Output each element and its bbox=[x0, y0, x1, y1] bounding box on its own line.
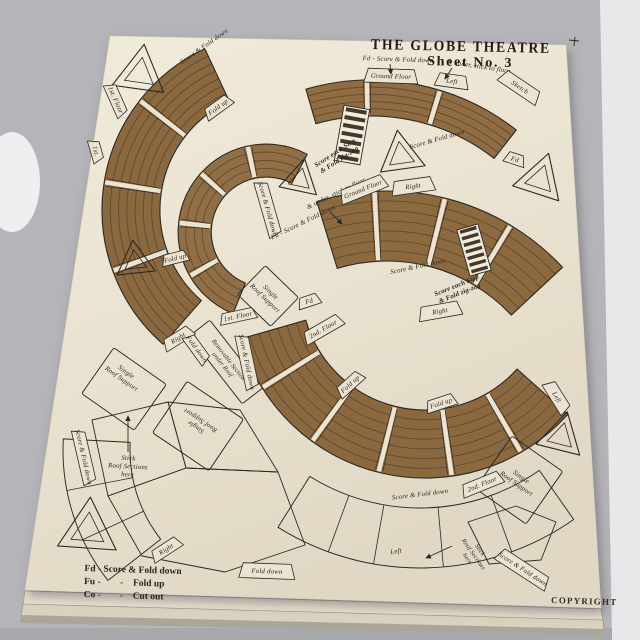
piece-label: Fold down bbox=[250, 568, 283, 576]
piece-label: Stick bbox=[121, 455, 136, 463]
sheet-number: Sheet No. 3 bbox=[427, 53, 513, 70]
legend-entry: Fold up bbox=[133, 579, 165, 590]
legend-dash: - bbox=[120, 578, 123, 588]
segment-gap bbox=[180, 223, 211, 226]
legend-entry: Cut out bbox=[132, 592, 164, 603]
legend-entry: Co - bbox=[83, 590, 100, 601]
legend-entry: Fu - bbox=[84, 577, 101, 588]
glue-tab: Fold down bbox=[239, 563, 295, 580]
paper-sheet bbox=[25, 36, 601, 608]
copyright-text: COPYRIGHT bbox=[551, 595, 618, 607]
legend-dash: - bbox=[119, 591, 122, 601]
photo-of-cutout-sheet: Score & Fold down1st. Floor1st.Fold upFo… bbox=[0, 0, 640, 640]
photo-scene: Score & Fold down1st. Floor1st.Fold upFo… bbox=[0, 0, 640, 640]
piece-label: here bbox=[121, 471, 134, 479]
